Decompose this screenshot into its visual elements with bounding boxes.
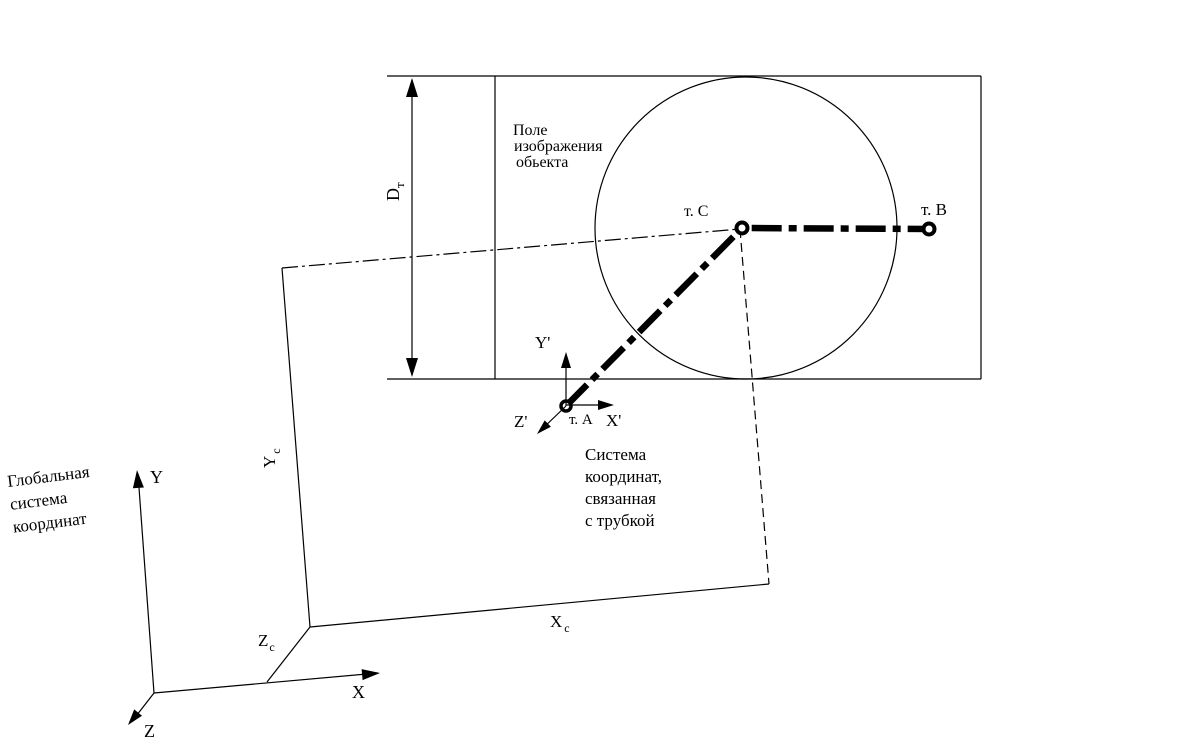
image-field-caption-line3: обьекта bbox=[516, 154, 568, 171]
tube-cs-caption-line3: связанная bbox=[585, 489, 656, 508]
image-field-caption-line1: Поле bbox=[513, 122, 547, 139]
point-c-label: т. С bbox=[684, 203, 708, 220]
dimension-arrow-down-icon bbox=[406, 358, 418, 377]
global-cs-caption-line1: Глобальная bbox=[6, 462, 90, 491]
global-x-arrow-icon bbox=[362, 669, 380, 680]
camera-zc-axis-line bbox=[267, 627, 310, 682]
global-y-arrow-icon bbox=[133, 470, 144, 488]
dimension-label: Dт bbox=[383, 182, 407, 201]
global-x-label: X bbox=[352, 682, 365, 702]
point-marker-c bbox=[737, 223, 748, 234]
global-cs-caption-line3: координат bbox=[12, 509, 88, 537]
global-cs-caption: Глобальная система координат bbox=[6, 462, 96, 537]
image-field-caption-line2: изображения bbox=[514, 138, 603, 155]
tube-y-label: Y' bbox=[535, 333, 550, 352]
camera-zc-label: Zc bbox=[258, 631, 275, 654]
point-marker-b bbox=[924, 224, 935, 235]
tube-z-label: Z' bbox=[514, 412, 527, 431]
image-field-caption: Поле изображения обьекта bbox=[513, 122, 603, 171]
point-a-label: т. А bbox=[569, 412, 593, 428]
camera-plane-top-edge bbox=[282, 229, 740, 268]
global-cs-caption-line2: система bbox=[9, 488, 69, 514]
dimension-arrow-up-icon bbox=[406, 78, 418, 97]
global-z-label: Z bbox=[144, 721, 155, 740]
diagram-canvas: Dт Xc Yc Zc X Y Z Глобальная система коо… bbox=[0, 0, 1196, 740]
global-y-label: Y bbox=[150, 467, 163, 487]
camera-yc-label: Yc bbox=[260, 448, 283, 468]
tube-x-arrow-icon bbox=[598, 400, 614, 410]
tube-cs-caption-line4: с трубкой bbox=[585, 511, 655, 530]
global-x-axis-line bbox=[154, 673, 378, 693]
tube-cs-caption-line2: координат, bbox=[585, 467, 662, 486]
tube-x-label: X' bbox=[606, 411, 621, 430]
tube-y-arrow-icon bbox=[561, 352, 571, 368]
camera-xc-label: Xc bbox=[550, 612, 570, 635]
global-y-axis-line bbox=[138, 474, 154, 693]
camera-plane-bottom-edge bbox=[310, 584, 769, 627]
point-b-label: т. В bbox=[921, 200, 947, 219]
diagram-page: Dт Xc Yc Zc X Y Z Глобальная система коо… bbox=[0, 0, 1196, 740]
tube-cs-caption: Система координат, связанная с трубкой bbox=[585, 445, 662, 530]
camera-plane-right-edge bbox=[740, 229, 769, 584]
camera-plane-left-edge bbox=[282, 268, 310, 627]
tube-cs-caption-line1: Система bbox=[585, 445, 647, 464]
